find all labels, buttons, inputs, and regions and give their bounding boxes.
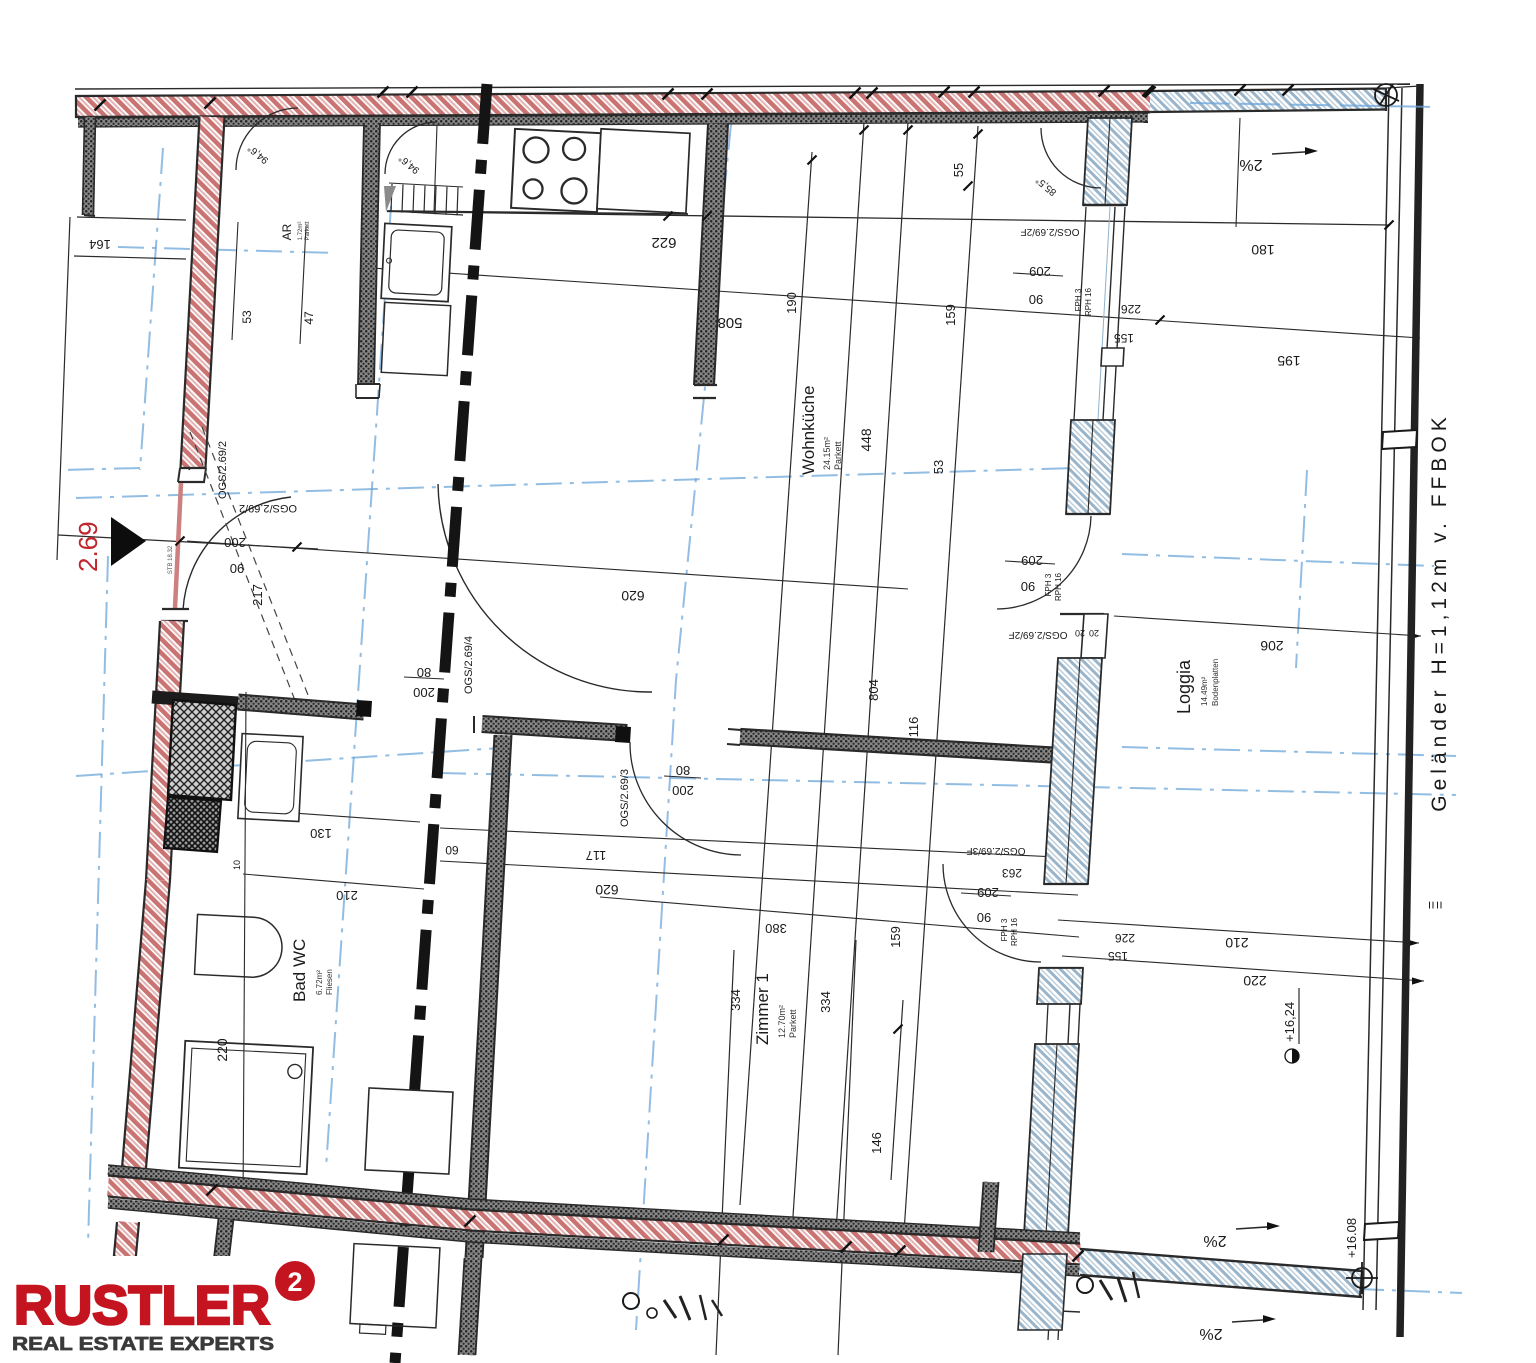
svg-text:2%: 2% xyxy=(1199,1325,1222,1342)
svg-text:14.49m²: 14.49m² xyxy=(1200,676,1209,706)
svg-text:RPH 16: RPH 16 xyxy=(1084,287,1093,316)
svg-text:Geländer H=1,12m v. FFBOK: Geländer H=1,12m v. FFBOK xyxy=(1428,412,1451,811)
svg-text:24.15m²: 24.15m² xyxy=(822,437,832,470)
svg-text:AR: AR xyxy=(280,223,294,240)
svg-text:RPH 16: RPH 16 xyxy=(1010,917,1019,946)
svg-text:200: 200 xyxy=(224,535,246,550)
svg-text:OGS/2.69/3F: OGS/2.69/3F xyxy=(967,845,1026,856)
svg-text:620: 620 xyxy=(621,588,645,604)
svg-text:FPH 3: FPH 3 xyxy=(1000,918,1009,941)
svg-text:2.69: 2.69 xyxy=(73,521,103,572)
svg-text:226: 226 xyxy=(1121,302,1141,316)
svg-text:155: 155 xyxy=(1108,949,1128,963)
svg-text:146: 146 xyxy=(869,1132,884,1154)
svg-text:90: 90 xyxy=(230,561,244,576)
svg-text:60: 60 xyxy=(445,843,459,857)
svg-text:220: 220 xyxy=(214,1038,230,1062)
svg-text:6.72m²: 6.72m² xyxy=(315,970,324,995)
svg-text:180: 180 xyxy=(1251,242,1275,258)
svg-text:220: 220 xyxy=(1243,973,1267,989)
svg-text:RPH 16: RPH 16 xyxy=(1054,572,1063,601)
svg-text:226: 226 xyxy=(1115,931,1135,945)
svg-text:53: 53 xyxy=(931,460,946,474)
svg-text:90: 90 xyxy=(1029,292,1043,307)
svg-text:2: 2 xyxy=(287,1267,302,1297)
svg-text:2%: 2% xyxy=(1203,1232,1226,1249)
svg-text:Loggia: Loggia xyxy=(1174,659,1194,714)
svg-text:263: 263 xyxy=(1002,866,1022,880)
svg-text:10: 10 xyxy=(232,860,242,870)
svg-text:508: 508 xyxy=(717,314,742,331)
svg-text:OGS/2.69/2: OGS/2.69/2 xyxy=(217,441,229,499)
svg-text:Bad WC: Bad WC xyxy=(290,939,309,1002)
svg-text:210: 210 xyxy=(1225,935,1249,951)
svg-text:130: 130 xyxy=(310,826,332,841)
svg-text:Zimmer 1: Zimmer 1 xyxy=(753,973,772,1045)
svg-text:116: 116 xyxy=(906,717,921,738)
svg-text:159: 159 xyxy=(888,926,903,948)
svg-text:53: 53 xyxy=(240,310,254,324)
svg-text:209: 209 xyxy=(1029,264,1051,279)
svg-text:164: 164 xyxy=(89,237,111,252)
svg-text:STB 18.32: STB 18.32 xyxy=(168,545,174,574)
svg-text:448: 448 xyxy=(858,428,874,452)
svg-text:55: 55 xyxy=(951,163,966,177)
svg-text:200: 200 xyxy=(672,783,694,798)
svg-text:209: 209 xyxy=(977,885,999,900)
svg-text:+16,24: +16,24 xyxy=(1282,1002,1297,1042)
svg-text:210: 210 xyxy=(336,888,358,903)
svg-text:90: 90 xyxy=(977,910,991,925)
svg-text:217: 217 xyxy=(250,584,265,606)
svg-text:190: 190 xyxy=(784,292,799,314)
svg-text:206: 206 xyxy=(1260,638,1284,654)
svg-text:90: 90 xyxy=(1021,579,1035,594)
svg-text:80: 80 xyxy=(676,763,690,778)
svg-text:FPH 3: FPH 3 xyxy=(1044,573,1053,596)
svg-text:Bodenplatten: Bodenplatten xyxy=(1211,659,1220,706)
svg-text:804: 804 xyxy=(866,679,881,701)
svg-text:OGS/2.69/3: OGS/2.69/3 xyxy=(619,769,631,827)
svg-text:RUSTLER: RUSTLER xyxy=(14,1274,270,1336)
svg-text:12.70m²: 12.70m² xyxy=(777,1005,787,1038)
svg-text:20: 20 xyxy=(1075,628,1085,638)
svg-text:622: 622 xyxy=(651,234,676,251)
svg-text:+16.08: +16.08 xyxy=(1344,1218,1359,1258)
svg-text:2%: 2% xyxy=(1239,156,1262,173)
svg-text:OGS/2.69/2: OGS/2.69/2 xyxy=(239,502,297,514)
svg-text:47: 47 xyxy=(302,311,316,325)
svg-text:155: 155 xyxy=(1114,331,1134,345)
svg-text:OGS/2.69/2F: OGS/2.69/2F xyxy=(1009,629,1068,640)
svg-text:Parkett: Parkett xyxy=(833,441,843,470)
svg-text:380: 380 xyxy=(765,921,787,936)
svg-text:1.72m²: 1.72m² xyxy=(298,222,304,241)
svg-text:Parkett: Parkett xyxy=(305,221,311,240)
svg-text:Wohnküche: Wohnküche xyxy=(799,386,818,475)
svg-text:20: 20 xyxy=(1089,628,1099,638)
svg-text:=: = xyxy=(1423,901,1439,909)
svg-text:200: 200 xyxy=(413,685,435,700)
svg-text:159: 159 xyxy=(943,304,958,326)
svg-text:195: 195 xyxy=(1277,353,1301,369)
svg-text:FPH 3: FPH 3 xyxy=(1074,288,1083,311)
svg-text:620: 620 xyxy=(595,882,619,898)
svg-text:334: 334 xyxy=(728,989,743,1011)
svg-text:Fliesen: Fliesen xyxy=(325,969,334,995)
svg-text:Parkett: Parkett xyxy=(788,1009,798,1038)
svg-text:117: 117 xyxy=(586,848,607,863)
svg-text:OGS/2.69/2F: OGS/2.69/2F xyxy=(1021,226,1080,237)
svg-text:OGS/2.69/4: OGS/2.69/4 xyxy=(463,636,475,694)
svg-text:REAL ESTATE EXPERTS: REAL ESTATE EXPERTS xyxy=(12,1334,274,1354)
svg-text:334: 334 xyxy=(818,991,833,1013)
svg-text:209: 209 xyxy=(1021,553,1043,568)
